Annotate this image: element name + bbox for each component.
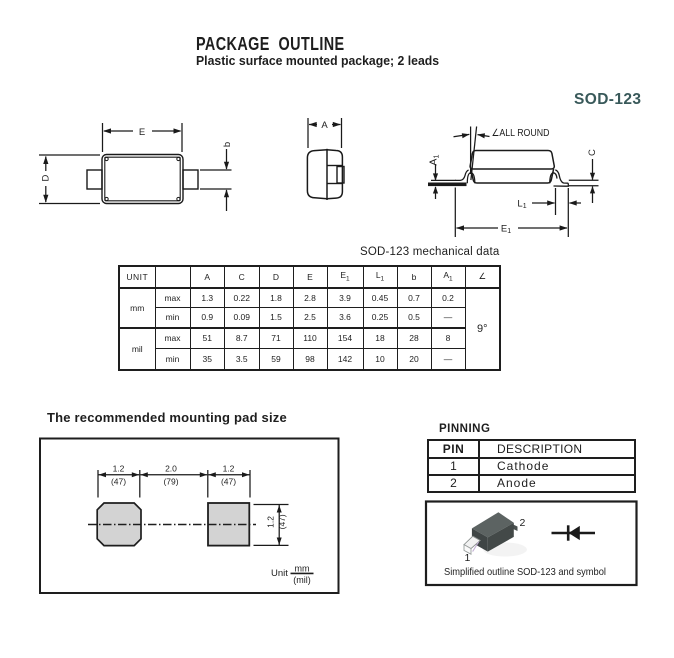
svg-text:Simplified outline SOD-123 and: Simplified outline SOD-123 and symbol [444,566,606,578]
svg-text:1: 1 [465,552,471,564]
svg-text:2: 2 [520,517,526,529]
